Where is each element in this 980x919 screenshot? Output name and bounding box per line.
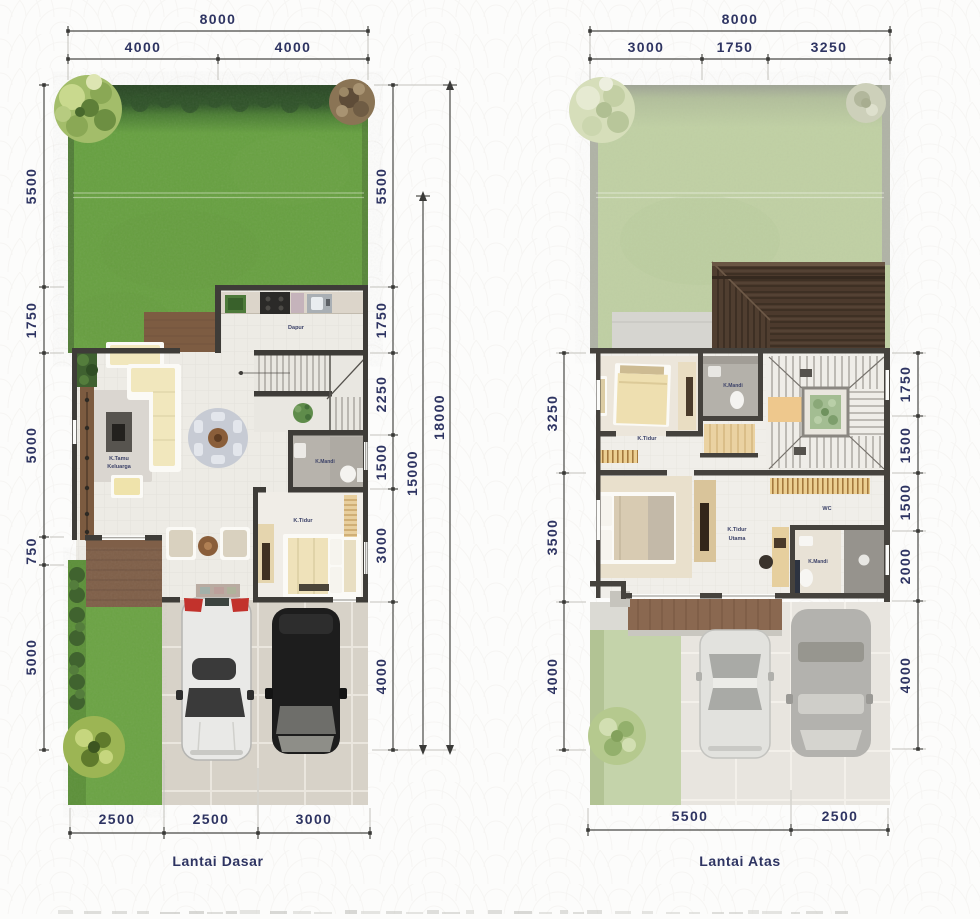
svg-text:4000: 4000 [275, 39, 312, 55]
svg-text:3250: 3250 [544, 395, 560, 432]
svg-text:K.Tamu: K.Tamu [109, 456, 129, 462]
svg-text:2500: 2500 [822, 808, 859, 824]
svg-text:1750: 1750 [373, 302, 389, 339]
svg-text:K.Tidur: K.Tidur [727, 527, 747, 533]
svg-text:750: 750 [23, 537, 39, 565]
svg-text:2000: 2000 [897, 548, 913, 585]
svg-text:1750: 1750 [897, 366, 913, 403]
svg-text:1750: 1750 [717, 39, 754, 55]
svg-text:4000: 4000 [897, 657, 913, 694]
svg-text:Dapur: Dapur [288, 325, 305, 331]
svg-text:WC: WC [822, 506, 831, 512]
svg-text:Keluarga: Keluarga [107, 464, 131, 470]
svg-text:2250: 2250 [373, 376, 389, 413]
svg-text:Lantai Atas: Lantai Atas [699, 853, 781, 869]
svg-text:K.Mandi: K.Mandi [808, 559, 828, 565]
svg-text:3000: 3000 [373, 527, 389, 564]
svg-text:1500: 1500 [897, 484, 913, 521]
svg-text:4000: 4000 [125, 39, 162, 55]
svg-text:3250: 3250 [811, 39, 848, 55]
svg-text:5500: 5500 [672, 808, 709, 824]
svg-text:3500: 3500 [544, 519, 560, 556]
svg-text:8000: 8000 [200, 11, 237, 27]
svg-text:8000: 8000 [722, 11, 759, 27]
svg-text:4000: 4000 [544, 658, 560, 695]
svg-text:4000: 4000 [373, 658, 389, 695]
svg-text:5500: 5500 [373, 168, 389, 205]
svg-text:5000: 5000 [23, 639, 39, 676]
svg-text:5000: 5000 [23, 427, 39, 464]
svg-text:3000: 3000 [628, 39, 665, 55]
svg-text:K.Mandi: K.Mandi [723, 383, 743, 389]
svg-text:3000: 3000 [296, 811, 333, 827]
svg-text:1500: 1500 [897, 427, 913, 464]
svg-text:1500: 1500 [373, 444, 389, 481]
svg-text:2500: 2500 [193, 811, 230, 827]
svg-text:1750: 1750 [23, 302, 39, 339]
svg-text:Lantai Dasar: Lantai Dasar [172, 853, 263, 869]
svg-text:5500: 5500 [23, 168, 39, 205]
svg-text:18000: 18000 [431, 394, 447, 440]
svg-text:K.Tidur: K.Tidur [293, 518, 313, 524]
svg-text:2500: 2500 [99, 811, 136, 827]
svg-text:15000: 15000 [404, 450, 420, 496]
svg-text:Utama: Utama [729, 536, 747, 542]
svg-text:K.Tidur: K.Tidur [637, 436, 657, 442]
svg-text:K.Mandi: K.Mandi [315, 459, 335, 465]
